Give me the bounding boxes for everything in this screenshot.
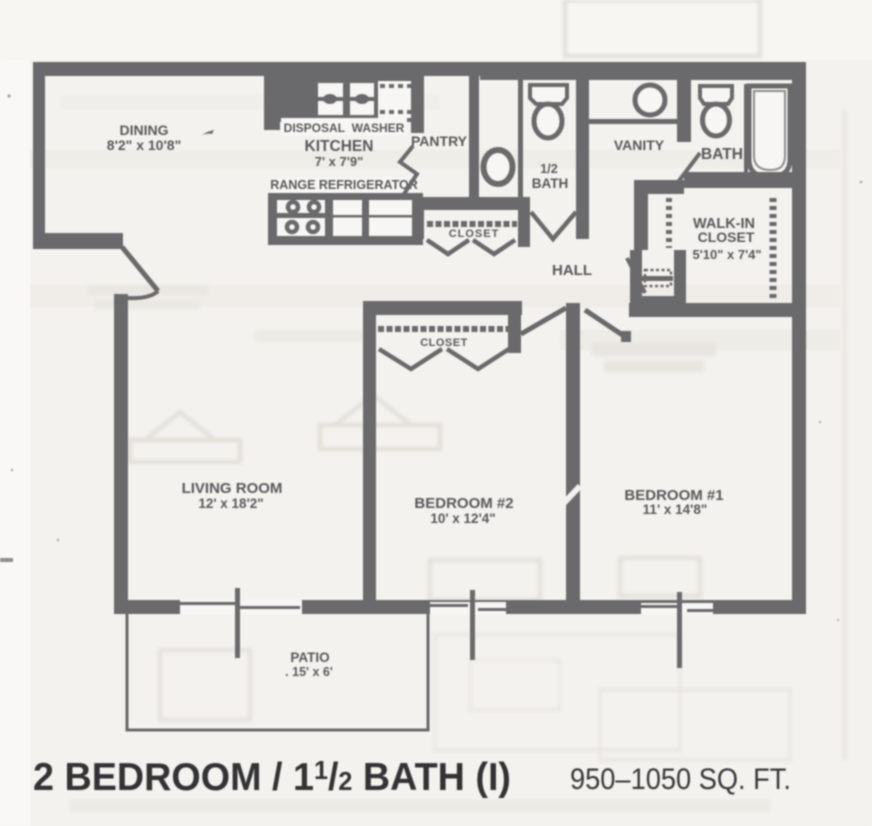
svg-text:5'10" x 7'4": 5'10" x 7'4": [692, 247, 761, 262]
svg-text:8'2" x 10'8": 8'2" x 10'8": [107, 137, 181, 153]
svg-text:DISPOSAL WASHER: DISPOSAL WASHER: [284, 121, 405, 135]
svg-text:. 15' x 6': . 15' x 6': [285, 665, 333, 679]
svg-text:PATIO: PATIO: [290, 650, 329, 665]
svg-text:BATH: BATH: [532, 176, 569, 191]
svg-text:VANITY: VANITY: [614, 137, 665, 153]
svg-text:CLOSET: CLOSET: [449, 228, 500, 240]
svg-text:1/2: 1/2: [540, 162, 557, 176]
svg-text:12' x 18'2": 12' x 18'2": [198, 496, 263, 511]
svg-text:HALL: HALL: [552, 262, 592, 279]
svg-text:PANTRY: PANTRY: [411, 133, 468, 149]
svg-text:CLOSET: CLOSET: [698, 229, 755, 245]
svg-text:2 BEDROOM / 11/2 BATH (I): 2 BEDROOM / 11/2 BATH (I): [33, 755, 511, 799]
svg-text:BEDROOM #2: BEDROOM #2: [414, 495, 513, 512]
svg-text:7' x 7'9": 7' x 7'9": [315, 154, 364, 169]
svg-text:RANGE REFRIGERATOR: RANGE REFRIGERATOR: [270, 178, 417, 192]
svg-text:BATH: BATH: [701, 146, 743, 163]
svg-text:950–1050 SQ. FT.: 950–1050 SQ. FT.: [570, 763, 791, 796]
svg-text:DINING: DINING: [120, 122, 169, 138]
svg-text:CLOSET: CLOSET: [420, 337, 468, 349]
svg-text:11' x 14'8": 11' x 14'8": [643, 502, 708, 517]
svg-text:10' x 12'4": 10' x 12'4": [430, 511, 495, 526]
svg-text:KITCHEN: KITCHEN: [305, 138, 374, 155]
svg-text:LIVING ROOM: LIVING ROOM: [182, 480, 283, 497]
